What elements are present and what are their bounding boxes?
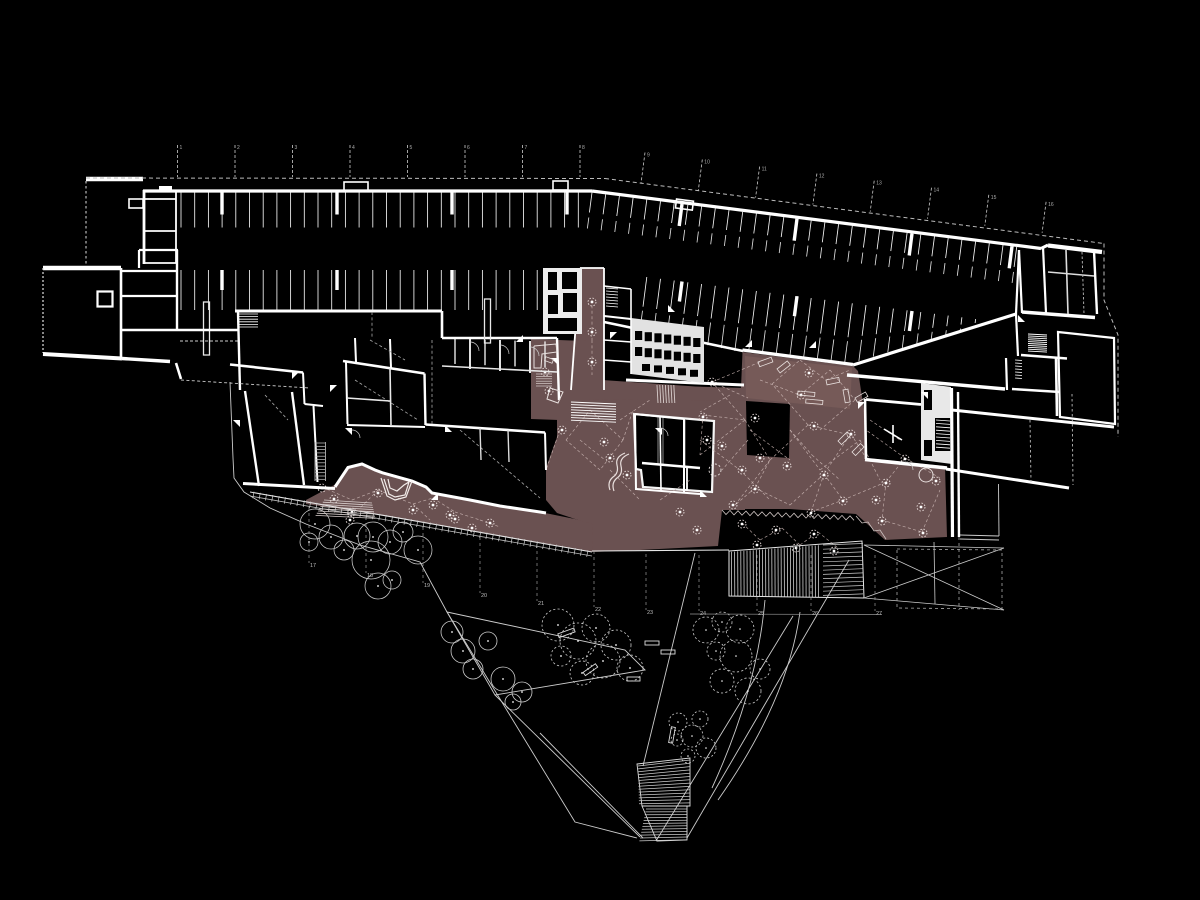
svg-text:10: 10 (704, 160, 710, 166)
svg-text:4: 4 (352, 145, 355, 151)
svg-text:1: 1 (180, 145, 183, 151)
svg-text:15: 15 (991, 195, 997, 201)
svg-text:27: 27 (876, 611, 882, 617)
svg-text:19: 19 (424, 583, 430, 589)
svg-text:22: 22 (595, 607, 601, 613)
svg-text:16: 16 (1048, 202, 1054, 208)
svg-text:3: 3 (295, 145, 298, 151)
svg-text:12: 12 (819, 174, 825, 180)
svg-text:20: 20 (481, 593, 487, 599)
svg-text:5: 5 (410, 145, 413, 151)
svg-text:9: 9 (647, 153, 650, 159)
svg-text:13: 13 (876, 181, 882, 187)
svg-text:23: 23 (647, 610, 653, 616)
svg-text:11: 11 (762, 167, 767, 173)
svg-text:8: 8 (582, 145, 585, 151)
svg-text:7: 7 (525, 145, 528, 151)
svg-text:14: 14 (934, 188, 940, 194)
svg-text:2: 2 (237, 145, 240, 151)
svg-text:17: 17 (310, 563, 316, 569)
svg-text:6: 6 (467, 145, 470, 151)
svg-text:21: 21 (538, 601, 544, 607)
svg-text:18: 18 (367, 573, 373, 579)
